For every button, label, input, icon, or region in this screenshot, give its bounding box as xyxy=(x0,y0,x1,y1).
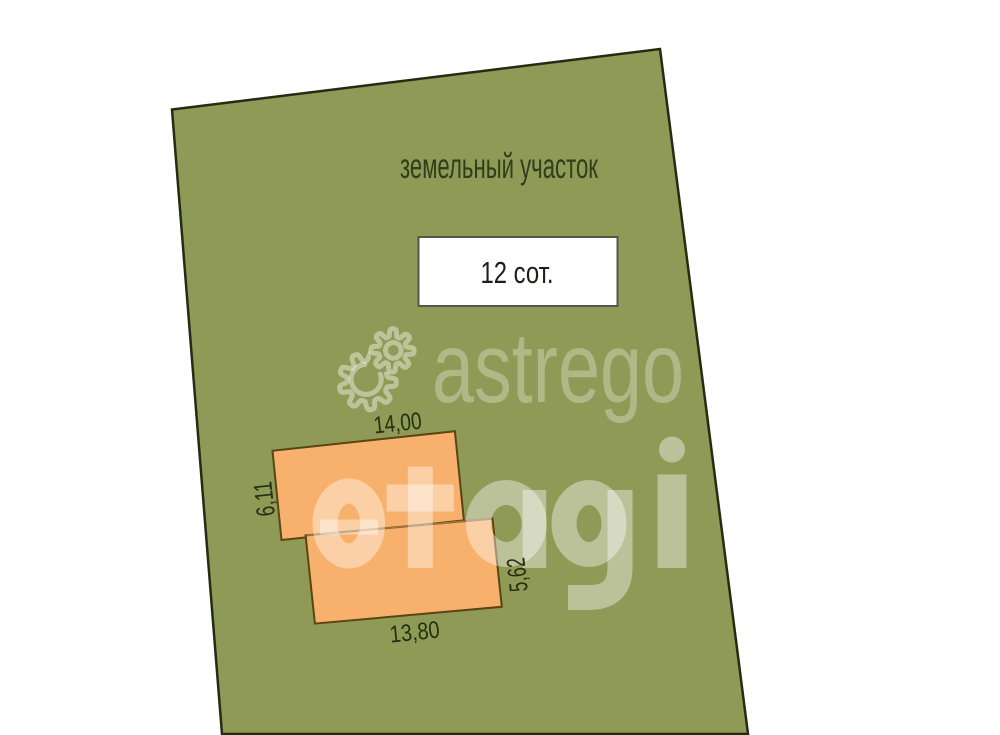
svg-text:14,00: 14,00 xyxy=(372,408,423,440)
svg-text:земельный участок: земельный участок xyxy=(400,147,598,186)
svg-text:12 сот.: 12 сот. xyxy=(481,255,554,290)
svg-text:13,80: 13,80 xyxy=(388,617,441,649)
svg-text:astrego: astrego xyxy=(432,312,684,424)
svg-text:6,11: 6,11 xyxy=(247,480,280,518)
svg-text:5,62: 5,62 xyxy=(500,556,533,593)
